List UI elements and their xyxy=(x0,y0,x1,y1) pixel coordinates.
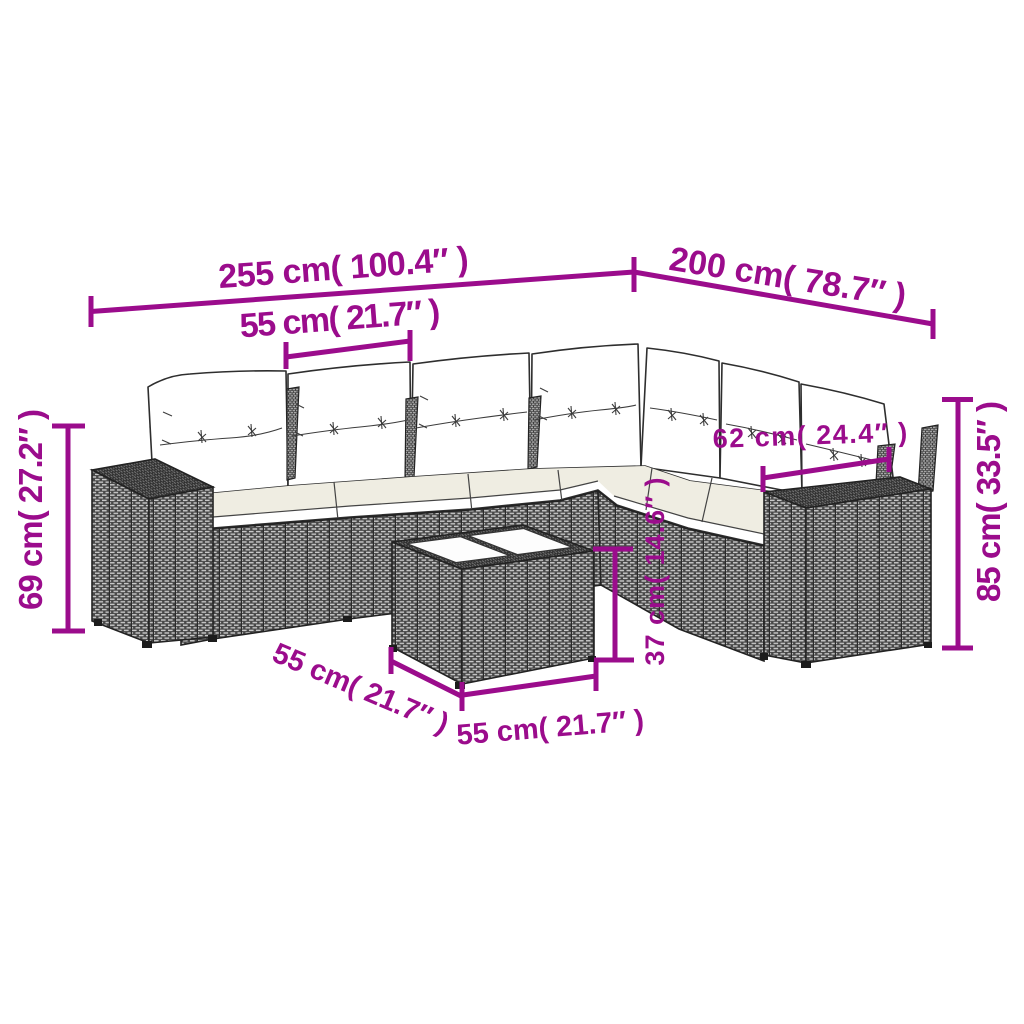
svg-text:69 cm( 27.2″ ): 69 cm( 27.2″ ) xyxy=(12,410,49,610)
svg-text:37 cm( 14.6″ ): 37 cm( 14.6″ ) xyxy=(640,476,670,665)
svg-text:85 cm( 33.5″ ): 85 cm( 33.5″ ) xyxy=(970,402,1007,602)
